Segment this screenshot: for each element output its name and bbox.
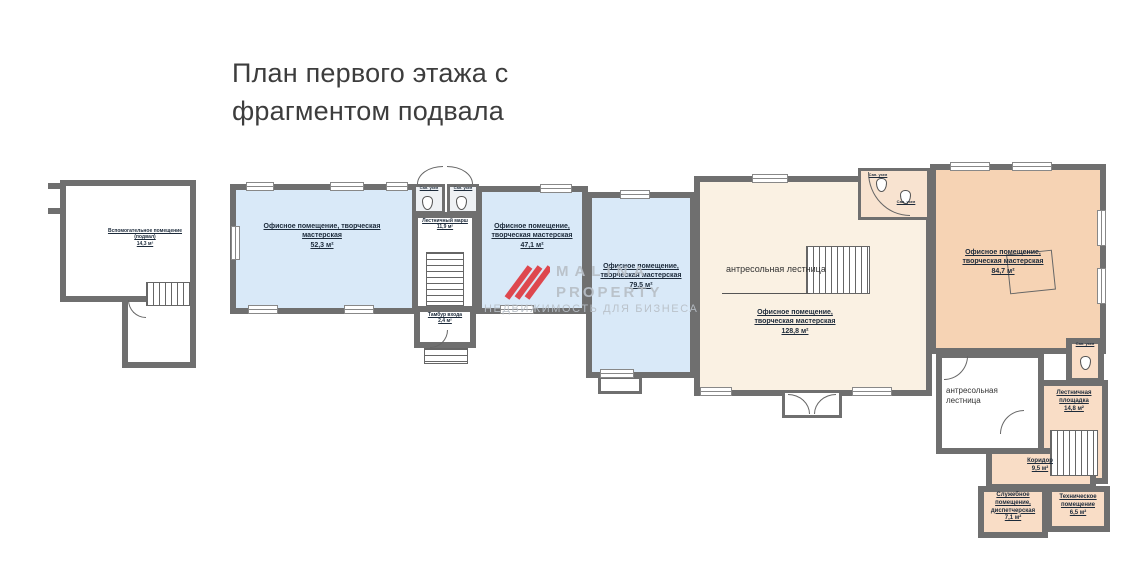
door-arc	[447, 166, 473, 184]
room-label-wc: Сан. узел	[414, 186, 444, 191]
annotation-mezzanine-right: антресольная лестница	[946, 386, 1020, 406]
room-label-office-2: Офисное помещение, творческая мастерская…	[482, 222, 582, 250]
room-label-basement: Вспомогательное помещение (подвал) 14,3 …	[100, 228, 190, 247]
room-label-corridor: Коридор 9,5 м²	[1010, 458, 1070, 474]
window-marker	[852, 387, 892, 396]
porch	[598, 376, 642, 394]
room-label-technical: Техническое помещение 6,5 м²	[1049, 494, 1107, 517]
door-arc	[417, 166, 443, 184]
wall-stub	[48, 208, 62, 214]
room-label-office-5: Офисное помещение, творческая мастерская…	[948, 248, 1058, 276]
window-marker	[231, 226, 240, 260]
window-marker	[620, 190, 650, 199]
watermark-brand-line2: PROPERTY	[556, 284, 663, 301]
room-label-office-4: Офисное помещение, творческая мастерская…	[740, 308, 850, 336]
page-title: План первого этажа с фрагментом подвала	[232, 55, 577, 131]
window-marker	[950, 162, 990, 171]
window-marker	[246, 182, 274, 191]
room-label-service: Служебное помещение, диспетчерская 7,1 м…	[982, 492, 1044, 523]
window-marker	[540, 184, 572, 193]
stairs-icon	[146, 282, 190, 306]
room-label-wc: Сан. узел	[1068, 342, 1102, 347]
annotation-mezzanine-left: антресольная лестница	[726, 264, 836, 275]
window-marker	[344, 305, 374, 314]
stairs-icon	[426, 252, 464, 306]
room-label-wc: Сан. узел	[862, 173, 894, 178]
window-marker	[1012, 162, 1052, 171]
floor-plan-canvas: План первого этажа с фрагментом подвала …	[0, 0, 1148, 579]
watermark-logo	[504, 264, 550, 300]
room-label-stair-landing: Лестничная площадка 14,8 м²	[1042, 390, 1106, 413]
room-label-stair-flight: Лестничный марш 11,9 м²	[416, 218, 474, 231]
window-marker	[1097, 268, 1106, 304]
watermark-tagline: НЕДВИЖИМОСТЬ ДЛЯ БИЗНЕСА	[484, 303, 699, 315]
window-marker	[700, 387, 732, 396]
room-label-tambour: Тамбур входа 2,4 м²	[418, 312, 472, 325]
annotation-leader-line	[722, 293, 810, 294]
entrance-steps-icon	[424, 348, 468, 364]
room-label-wc: Сан. узел	[448, 186, 478, 191]
wall-stub	[48, 183, 62, 189]
window-marker	[752, 174, 788, 183]
window-marker	[600, 369, 634, 378]
window-marker	[386, 182, 408, 191]
watermark-brand-line1: MALINA	[556, 263, 650, 280]
room-label-office-1: Офисное помещение, творческая мастерская…	[252, 222, 392, 250]
window-marker	[330, 182, 364, 191]
window-marker	[1097, 210, 1106, 246]
window-marker	[248, 305, 278, 314]
room-label-wc: Сан. узел	[890, 200, 922, 205]
